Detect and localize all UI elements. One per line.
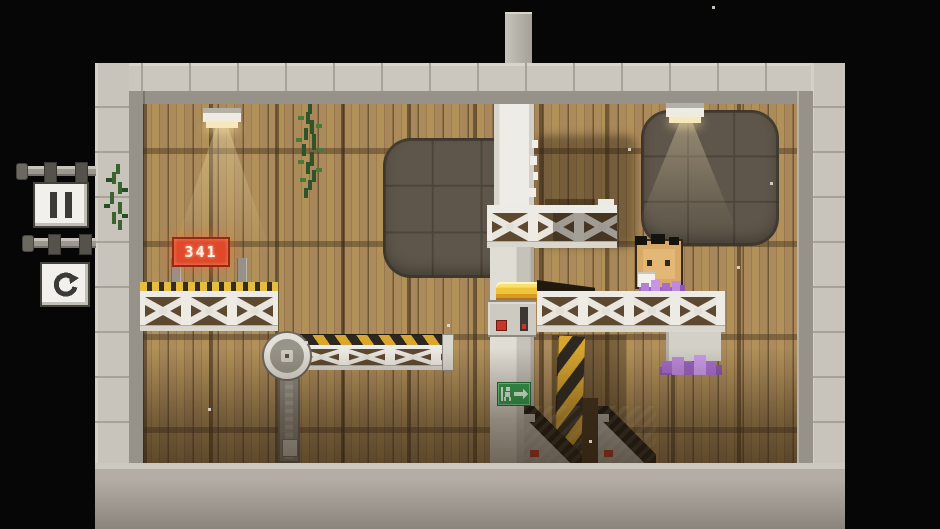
machine-red-button	[496, 320, 507, 331]
eye	[647, 260, 652, 266]
pole-clamp	[48, 234, 61, 255]
dust-speck	[208, 408, 211, 411]
pole-clamp	[75, 162, 88, 183]
ramp-red-mark	[530, 450, 539, 457]
stone-right-column	[811, 63, 845, 463]
eye	[665, 260, 670, 266]
white-pillar-top	[494, 104, 534, 208]
torn-edge	[533, 172, 538, 180]
butter-block	[496, 282, 542, 301]
dust-speck	[628, 148, 631, 151]
vine-interior	[288, 104, 334, 200]
pause-button[interactable]	[33, 182, 89, 228]
ramp-device-left	[524, 406, 582, 463]
stone-top-band	[95, 63, 845, 93]
exit-sign	[497, 382, 531, 406]
pivot-bolt	[285, 354, 289, 358]
restart-icon	[51, 271, 79, 299]
pole-end-cap	[22, 235, 34, 252]
ramp-device-right	[598, 406, 656, 463]
pause-icon	[50, 192, 57, 218]
floor	[95, 463, 845, 529]
game-stage: 341	[0, 0, 940, 529]
dust-speck	[737, 266, 740, 269]
counter-display: 341	[172, 237, 230, 267]
platform-bottom-rail	[140, 325, 278, 331]
ramp-cap	[524, 414, 535, 422]
lamp-glow	[206, 122, 238, 128]
truss-shadow	[553, 213, 617, 241]
machine-slot	[520, 307, 528, 331]
rail-slider	[282, 439, 298, 457]
sign-post	[237, 258, 247, 283]
counter-value: 341	[184, 243, 217, 261]
slot-indicator	[522, 324, 526, 329]
platform-bottom-rail	[537, 325, 725, 332]
pivot-wheel	[264, 333, 310, 379]
hair-tuft	[651, 234, 665, 244]
pole-end-cap	[16, 163, 28, 180]
ceiling-lamp-right	[666, 103, 704, 117]
purple-crystals-bottom	[660, 353, 722, 377]
machine-panel	[488, 300, 536, 337]
lamp-glow	[669, 117, 701, 123]
conveyor-truss	[298, 349, 448, 365]
pole-clamp	[79, 234, 92, 255]
chimney-pillar-top	[505, 12, 532, 66]
dust-speck	[305, 341, 308, 344]
platform-truss-left	[140, 297, 278, 325]
ramp-red-mark	[604, 450, 613, 457]
platform-truss-right	[537, 297, 725, 325]
dust-speck	[447, 324, 450, 327]
restart-button[interactable]	[40, 262, 90, 307]
hair-tuft	[635, 236, 647, 245]
vine-wall	[98, 164, 138, 232]
torn-edge	[530, 156, 537, 165]
dust-speck	[589, 440, 592, 443]
stone-left-column	[95, 63, 129, 463]
conveyor-end-cap	[442, 334, 454, 371]
pause-icon	[65, 192, 72, 218]
ramp-cap	[598, 414, 609, 422]
exit-running-man-arrow-icon	[498, 383, 530, 405]
torn-edge	[532, 140, 538, 148]
dust-speck	[712, 6, 715, 9]
door-jamb-right	[797, 91, 813, 463]
hair-tuft	[669, 237, 679, 245]
pivot-hub	[281, 350, 293, 362]
vertical-rail	[278, 377, 300, 463]
conveyor-bottom-rail	[298, 365, 448, 370]
torn-edge	[529, 188, 536, 197]
pole-clamp	[44, 162, 57, 183]
dust-speck	[770, 182, 773, 185]
ceiling-lamp-left	[203, 108, 241, 122]
